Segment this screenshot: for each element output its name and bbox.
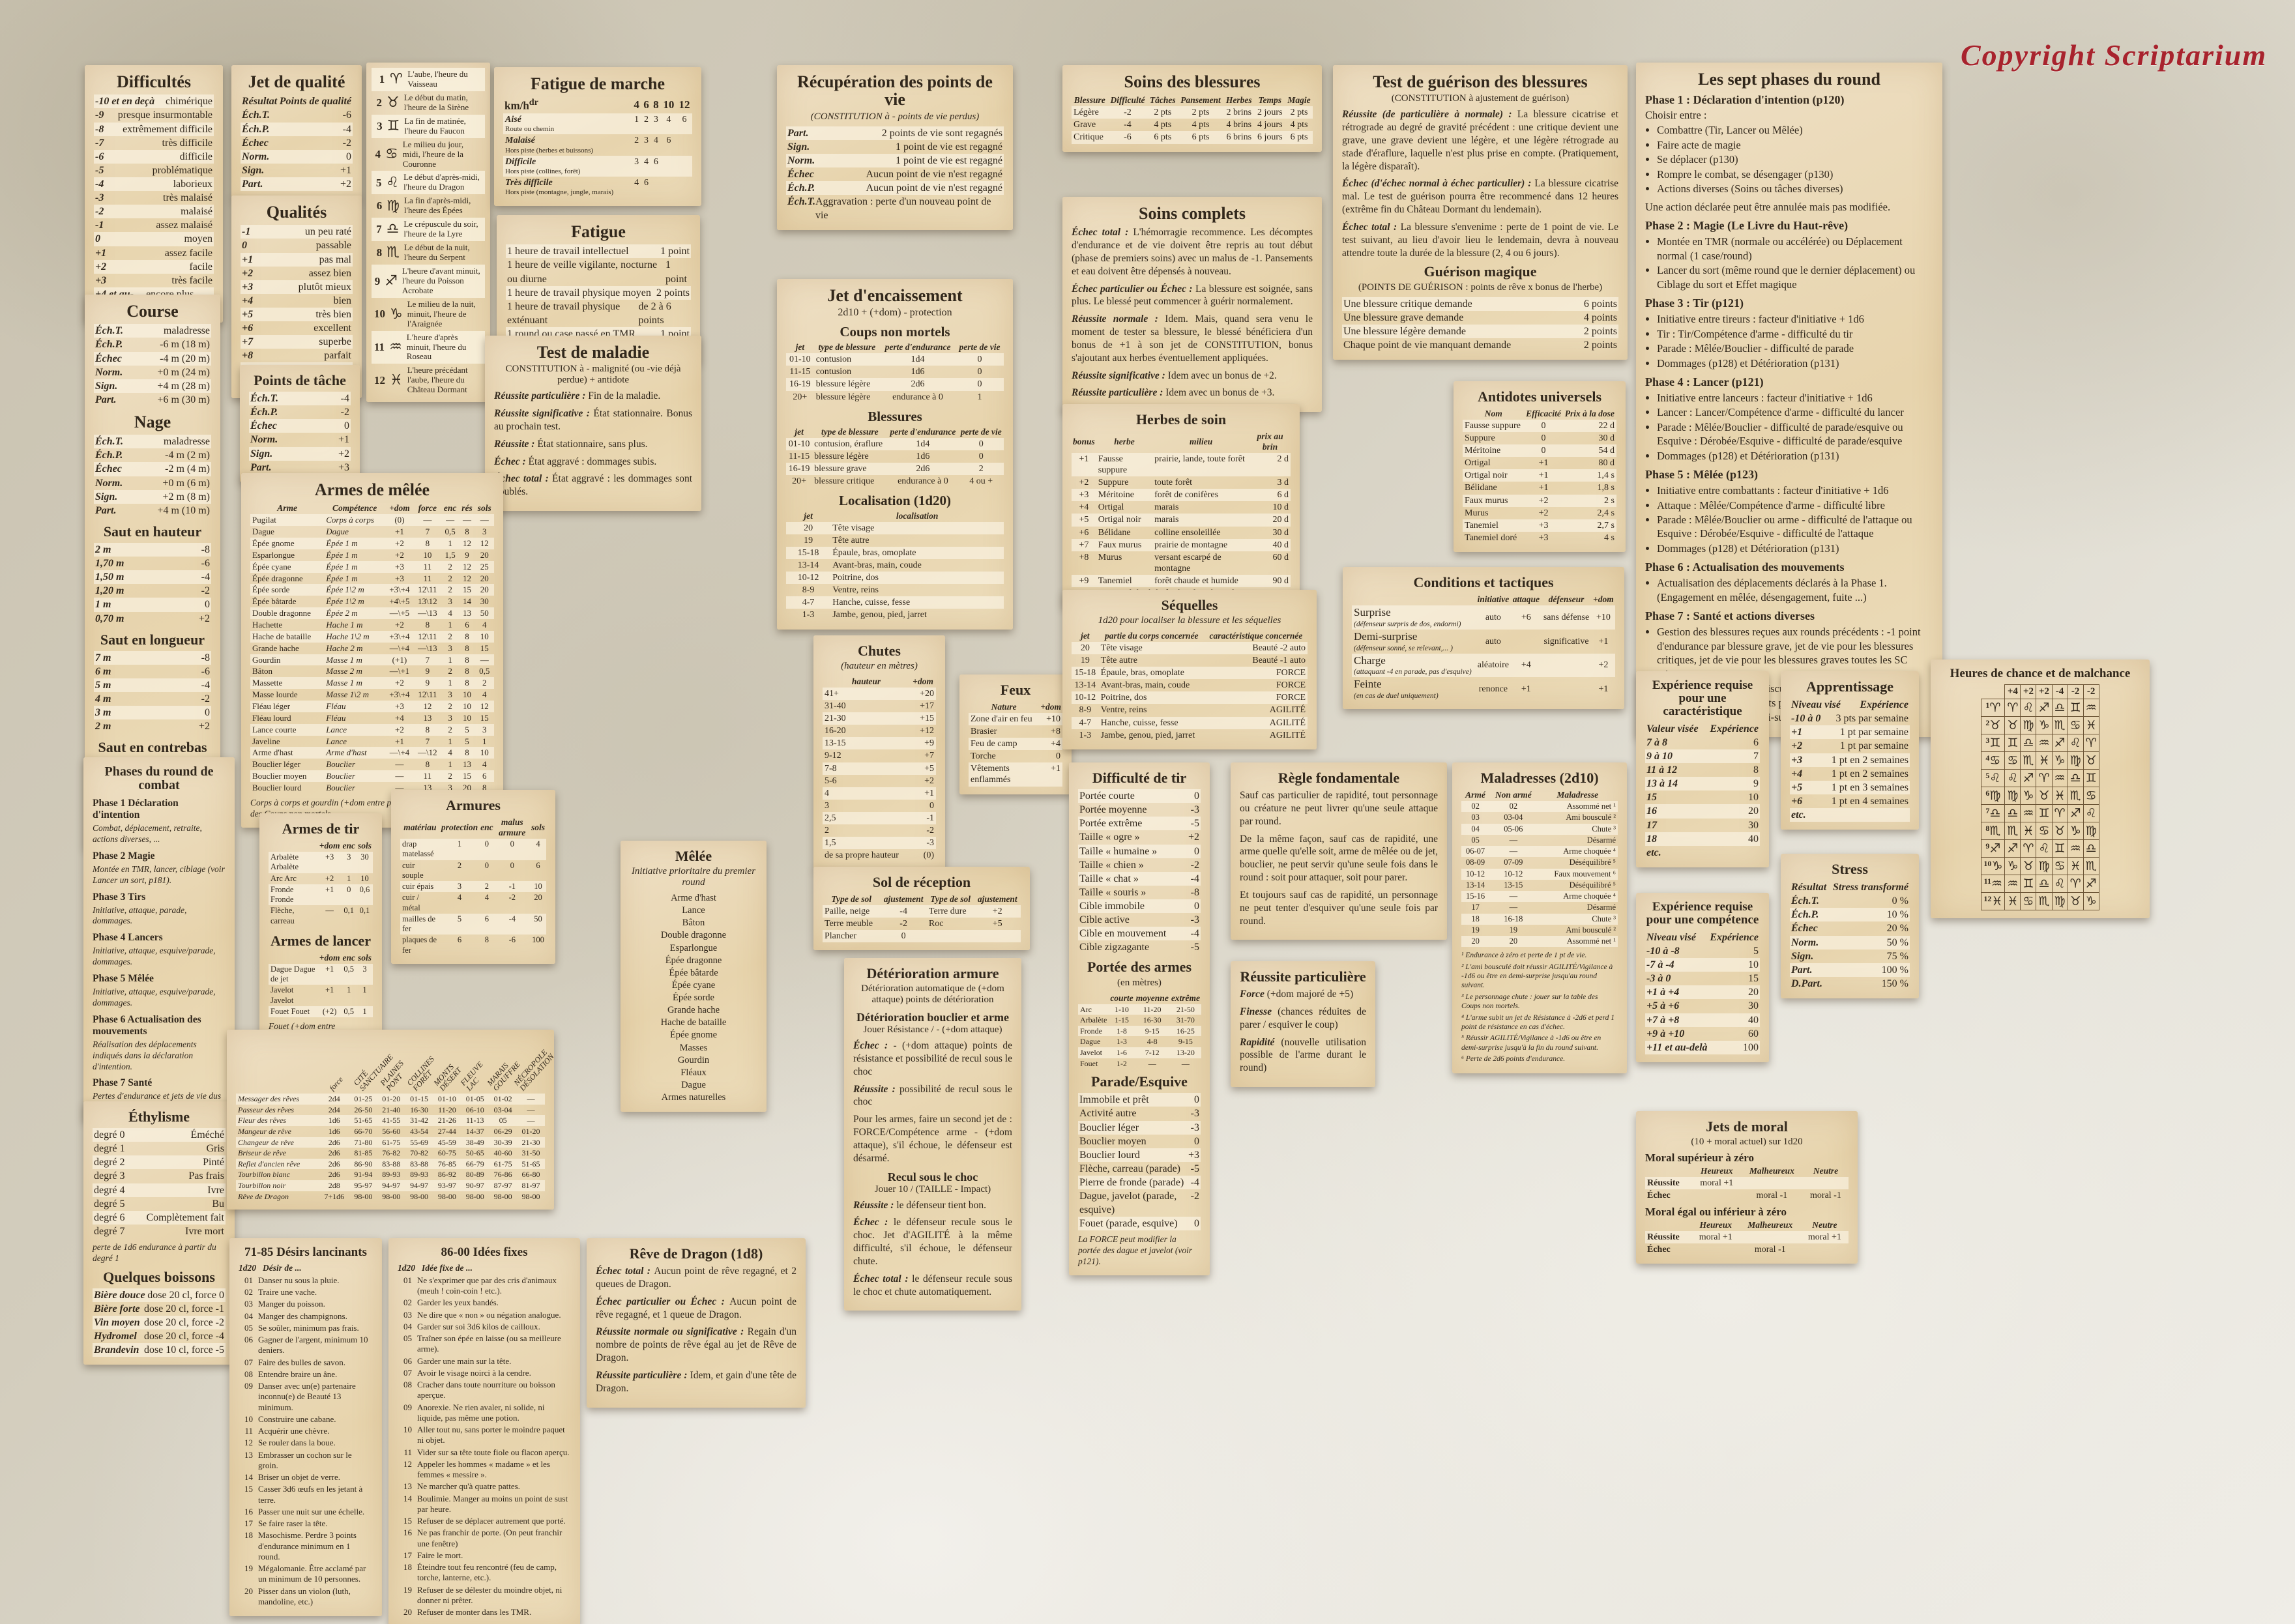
- list-item: 02Garder les yeux bandés.: [398, 1298, 571, 1308]
- cell: Suppure: [1463, 432, 1524, 444]
- cell-label: Taille « humaine »: [1079, 845, 1157, 858]
- table-row: -5problématique: [94, 164, 214, 177]
- table-row: Bière doucedose 20 cl, force 0: [93, 1288, 226, 1302]
- hour-sigil-icon: ♉: [2068, 892, 2083, 910]
- list-item: 09Anorexie. Ne rien avaler, ni solide, n…: [398, 1402, 571, 1424]
- cell: 02: [1489, 801, 1537, 812]
- table-row: Brasier+8: [969, 725, 1062, 738]
- exp-comp-table: Niveau viséExpérience-10 à -85-7 à -410-…: [1645, 931, 1760, 1054]
- table-header: RésultatPoints de qualité: [241, 94, 353, 108]
- paragraph: Réussite significative : État stationnai…: [494, 407, 692, 433]
- hour-number: 8: [374, 246, 382, 259]
- table-row: BâtonMasse 2 m—\+19280,5: [250, 665, 494, 677]
- hour-sigil-icon: ♊: [2068, 699, 2083, 716]
- cell: Épée gnome: [250, 538, 324, 549]
- hour-sigil-icon: ♐: [2021, 769, 2036, 787]
- cell: +4\+5: [385, 596, 414, 607]
- cell: 10-12: [1072, 691, 1099, 704]
- paragraph: Échec total : La blessure s'envenime : p…: [1342, 221, 1618, 259]
- table-row: MassetteMasse 1 m+29182: [250, 677, 494, 689]
- table-row: -10 et en deçàchimérique: [94, 94, 214, 108]
- cell: 3: [441, 596, 460, 607]
- cell: endurance à 0: [880, 391, 956, 403]
- cell-label: Bière forte: [94, 1302, 140, 1316]
- cell: Épée 2 m: [324, 607, 385, 619]
- cell-label: 7 à 8: [1646, 736, 1667, 749]
- cell: plaques de fer: [400, 935, 440, 956]
- paragraph: Échec : État aggravé : dommages subis.: [494, 456, 692, 469]
- cell: Fléau léger: [250, 701, 324, 712]
- phase-desc: Combat, déplacement, retraite, actions d…: [93, 823, 226, 845]
- cell: 0: [956, 366, 1004, 378]
- cell: 11: [414, 573, 441, 585]
- cell: +1: [385, 736, 414, 747]
- list-item: 10Aller tout nu, sans porter le moindre …: [398, 1425, 571, 1446]
- hour-sigil-icon: ♐: [2036, 699, 2052, 716]
- table-row: 0passable: [241, 239, 353, 252]
- cell: Lance courte: [250, 724, 324, 736]
- cell: Ortigal: [1096, 501, 1152, 514]
- cell: 13-14: [786, 559, 830, 572]
- grid-row: 8♏♏♓♋♉♑♍: [1981, 822, 2099, 839]
- cell-value: 1 point de vie est regagné: [896, 154, 1002, 167]
- list-item: 19Refuser de se délester du moindre obje…: [398, 1585, 571, 1606]
- table-row: 7 m-8: [94, 651, 211, 665]
- list-item: 07Faire des bulles de savon.: [239, 1357, 373, 1368]
- hour-sigil-icon: ♉: [1989, 718, 2000, 732]
- cell-value: 8: [1753, 763, 1759, 777]
- table-row: Fléau légerFléau+31221012: [250, 701, 494, 712]
- paragraph: Réussite particulière : Idem avec un bon…: [1072, 386, 1313, 399]
- table-row: cuir souple2006: [400, 860, 546, 882]
- table-header: HeureuxMalheureuxNeutre: [1645, 1219, 1849, 1231]
- paragraph: Échec particulier ou Échec : La blessure…: [1072, 283, 1313, 309]
- cell: 10: [459, 712, 475, 724]
- table-row: Fausse suppure022 d: [1463, 420, 1616, 432]
- hour-number: 3: [374, 120, 383, 133]
- hour-sigil-icon: ♐: [2052, 734, 2068, 751]
- table-row: 0,70 m+2: [94, 612, 211, 626]
- card-title: Règle fondamentale: [1240, 770, 1438, 785]
- cell-label: Échec: [787, 167, 814, 181]
- cell: +1: [318, 985, 342, 1006]
- hour-number: 4: [374, 148, 381, 161]
- table-row: 20+blessure légèreendurance à 01: [786, 391, 1004, 403]
- cell: 3: [441, 689, 460, 701]
- table-row: 7-8+5: [823, 762, 936, 775]
- hour-label: La fin d'après-midi, l'heure des Épées: [404, 196, 482, 216]
- ethylisme-table: degré 0Éméchédegré 1Grisdegré 2Pintédegr…: [93, 1128, 226, 1238]
- phase-desc: Initiative, attaque, esquive/parade, dom…: [93, 987, 226, 1009]
- cell-label: Portée extrême: [1079, 817, 1142, 830]
- cell-label: 17: [1646, 819, 1657, 832]
- hour-label: Le début du matin, l'heure de la Sirène: [404, 93, 482, 113]
- table-row: 4+1: [823, 787, 936, 800]
- cell-label: Part.: [242, 177, 263, 191]
- card-desirs-lancinants: 71-85 Désirs lancinants 1d20Désir de ...…: [229, 1238, 382, 1616]
- grid-row: 11♒♒♊♎♌♈♐: [1981, 875, 2099, 892]
- cell-value: difficile: [180, 150, 212, 164]
- table-row: Tourbillon noir2d895-9794-9794-9793-9790…: [236, 1180, 545, 1191]
- paragraph: Finesse (chances réduites de parer / esq…: [1240, 1006, 1366, 1032]
- table-row: Bélidane+11,8 s: [1463, 482, 1616, 494]
- table-row: Paille, neige-4Terre dure+2: [823, 905, 1021, 918]
- hour-sigil-icon: ♒: [2005, 875, 2021, 892]
- cell: 0: [1524, 444, 1562, 457]
- cell-value: problématique: [153, 164, 212, 177]
- cell: 2 d: [1250, 453, 1291, 476]
- cell-label: Taille « ogre »: [1079, 830, 1140, 844]
- cell-value: +2: [340, 177, 351, 191]
- cell: 8: [414, 538, 441, 549]
- cell: FORCE: [1205, 691, 1308, 704]
- table-row: Légère-22 pts2 pts2 brins2 jours2 pts: [1072, 106, 1313, 119]
- cell: Zone d'air en feu: [969, 713, 1039, 725]
- cell-label: 1 heure de travail physique exténuant: [507, 300, 638, 327]
- card-encaissement: Jet d'encaissement 2d10 + (+dom) - prote…: [777, 279, 1013, 630]
- table-row: Éch.P.-4 m (2 m): [94, 448, 211, 462]
- table-row: Chaque point de vie manquant demande2 po…: [1342, 338, 1618, 352]
- phase-item: Faire acte de magie: [1657, 138, 1933, 152]
- card-title: Jet d'encaissement: [786, 287, 1004, 304]
- list-item: Épée cyane: [630, 979, 757, 992]
- cell: Épée cyane: [250, 561, 324, 573]
- cell: 20 d: [1250, 514, 1291, 526]
- cell: +3: [385, 561, 414, 573]
- table-row: 1730: [1645, 819, 1760, 832]
- cell: colline ensoleillée: [1152, 527, 1250, 539]
- cell: Hachette: [250, 619, 324, 631]
- cell: Javeline: [250, 736, 324, 747]
- cell: 6: [440, 935, 479, 956]
- cell: 1-3: [1072, 729, 1099, 742]
- cell-label: Part.: [95, 504, 116, 517]
- cell: 3: [441, 643, 460, 654]
- hour-sigil-icon: ♉: [2005, 716, 2021, 734]
- cell-label: Éch.T.: [787, 195, 815, 222]
- cell: 3 d: [1250, 476, 1291, 489]
- list-item: 04Manger des champignons.: [239, 1311, 373, 1322]
- cell-value: 2 points: [1584, 338, 1617, 352]
- cell: 13\12: [414, 596, 441, 607]
- cell: Légère: [1072, 106, 1108, 119]
- cell: 19: [1072, 654, 1099, 667]
- cell-label: +4: [242, 294, 253, 308]
- cell-label: 2 m: [95, 719, 111, 733]
- footnote: ⁴ L'arme subit un jet de Résistance à -2…: [1461, 1013, 1618, 1032]
- table-row: Éch.T.Aggravation : perte d'un nouveau p…: [786, 195, 1004, 222]
- localisation-title: Localisation (1d20): [786, 493, 1004, 509]
- list-item: 19Mégalomanie. Être acclamé par un minim…: [239, 1563, 373, 1585]
- hour-sigil-icon: ♍: [2021, 716, 2036, 734]
- table-row: 16-19blessure grave2d62: [786, 463, 1004, 475]
- maladresses-table: ArméNon arméMaladresse0202Assommé net ¹0…: [1461, 789, 1618, 947]
- table-row: Immobile et prêt0: [1078, 1093, 1201, 1107]
- list-item: 14Boulimie. Manger au moins un point de …: [398, 1494, 571, 1515]
- grid-row: 6♍♍♑♉♓♏♋: [1981, 787, 2099, 804]
- cell: 22 d: [1563, 420, 1616, 432]
- cell-label: degré 0: [94, 1128, 125, 1142]
- saut-hauteur-title: Saut en hauteur: [94, 524, 211, 539]
- cell: —\+4: [385, 643, 414, 654]
- table-row: Bière fortedose 20 cl, force -1: [93, 1302, 226, 1316]
- table-row: Cible immobile0: [1078, 899, 1201, 913]
- table-row: Arbalète Arbalète+3330: [269, 852, 373, 873]
- hour-label: L'heure précédant l'aube, l'heure du Châ…: [407, 366, 482, 395]
- cell-label: Échec: [1791, 921, 1818, 935]
- cell-value: 2 points: [656, 286, 690, 300]
- cell: Épaule, bras, omoplate: [830, 547, 1004, 559]
- table-row: +9 à +1060: [1645, 1027, 1760, 1041]
- table-row: 3 m0: [94, 706, 211, 719]
- hour-sigil-icon: ♉: [387, 94, 400, 111]
- cell: +3: [1524, 532, 1562, 544]
- cell: 17: [1461, 902, 1489, 913]
- table-row: 11 à 128: [1645, 763, 1760, 777]
- cell: Faux mouvement ⁶: [1538, 869, 1618, 880]
- table-row: Activité autre-3: [1078, 1107, 1201, 1120]
- cell-value: -4: [1191, 872, 1199, 886]
- paragraph: Réussite : possibilité de recul sous le …: [853, 1083, 1012, 1109]
- table-row: 08-0907-09Déséquilibré ⁵: [1461, 857, 1618, 868]
- table-row: Mangeur de rêve1d666-7056-6043-5427-4414…: [236, 1126, 545, 1137]
- cell: 10-12: [786, 572, 830, 584]
- cell: +4: [1072, 501, 1096, 514]
- cell: 8: [459, 643, 475, 654]
- card-herbes-de-soin: Herbes de soin bonusherbemilieuprix au b…: [1062, 404, 1300, 607]
- cell: —: [385, 759, 414, 770]
- cell: Hache 1\2 m: [324, 631, 385, 643]
- cell: —: [1489, 835, 1537, 846]
- jets-moral-tables: Moral supérieur à zéroHeureuxMalheureuxN…: [1645, 1152, 1849, 1256]
- cell: Fronde: [1078, 1026, 1109, 1037]
- card-difficultes: Difficultés -10 et en deçàchimérique-9pr…: [85, 65, 223, 323]
- cell-value: +2: [199, 612, 210, 626]
- cell: 4: [475, 689, 494, 701]
- table-row: Plancher0: [823, 930, 1021, 942]
- table-row: Tourbillon blanc2d691-9489-9389-9386-928…: [236, 1169, 545, 1180]
- card-melee-initiative: Mêlée Initiative prioritaire du premier …: [621, 841, 767, 1112]
- cell: Faux murus: [1096, 539, 1152, 551]
- table-row: PugilatCorps à corps(0)————: [250, 514, 494, 526]
- cell: +1: [385, 526, 414, 538]
- phase-item: Attaque : Mêlée/Compétence d'arme - diff…: [1657, 499, 1933, 512]
- card-test-guerison: Test de guérison des blessures (CONSTITU…: [1333, 65, 1628, 360]
- hour-sigil-icon: ♐: [2005, 839, 2021, 857]
- table-row: Pierre de fronde (parade)-4: [1078, 1176, 1201, 1189]
- cell: 4: [530, 839, 546, 860]
- cell: 8: [459, 677, 475, 689]
- hour-sigil-icon: ♓: [1991, 894, 2002, 908]
- cell: Désarmé: [1538, 835, 1618, 846]
- cell-label: +1: [242, 253, 253, 267]
- cell: +2: [318, 873, 342, 884]
- table-row: 19Tête autreBeauté -1 auto: [1072, 654, 1308, 667]
- cell: 5: [440, 914, 479, 935]
- cell-value: +3: [1188, 1148, 1199, 1162]
- cell: +8: [1039, 725, 1062, 738]
- table-row: D.Part.150 %: [1790, 977, 1910, 991]
- hour-sigil-icon: ♒: [2021, 804, 2036, 822]
- cell-value: 1 pt en 2 semaines: [1832, 767, 1908, 781]
- cell-label: Portée courte: [1079, 789, 1135, 803]
- cell: 10-12: [1461, 869, 1489, 880]
- cell: Masse 1 m: [324, 654, 385, 666]
- table-row: 8-9Ventre, reins: [786, 584, 1004, 596]
- table-row: +21 pt par semaine: [1790, 739, 1910, 753]
- list-item: 05Traîner son épée en laisse (ou sa meil…: [398, 1333, 571, 1355]
- cell-label: degré 5: [94, 1197, 125, 1211]
- cell: +1: [1524, 457, 1562, 469]
- cell-value: 75 %: [1887, 950, 1908, 963]
- cell: Ventre, reins: [1099, 704, 1205, 716]
- cell-value: 1 pt en 3 semaines: [1832, 781, 1908, 794]
- table-row: Hache de batailleHache 1\2 m+3\+412\1128…: [250, 631, 494, 643]
- sequelles-table: jetpartie du corps concernéecaractéristi…: [1072, 630, 1308, 742]
- cell: 8: [459, 665, 475, 677]
- cell: 13-20: [1170, 1047, 1201, 1058]
- cell: Gourdin: [250, 654, 324, 666]
- cell-value: Ivre mort: [185, 1225, 224, 1238]
- hour-row: 12♓L'heure précédant l'aube, l'heure du …: [372, 364, 485, 397]
- cell: 1d4: [887, 438, 958, 450]
- table-row: +7 à +840: [1645, 1013, 1760, 1027]
- card-antidotes: Antidotes universels NomEfficacitéPrix à…: [1454, 381, 1626, 552]
- cell-label: +11 et au-delà: [1646, 1041, 1708, 1054]
- cell-value: -3: [1191, 1121, 1199, 1135]
- boissons-table: Bière doucedose 20 cl, force 0Bière fort…: [93, 1288, 226, 1357]
- table-row: -9presque insurmontable: [94, 108, 214, 122]
- cell: 8: [414, 619, 441, 631]
- table-row: JavelineLance+17151: [250, 736, 494, 747]
- phase-desc: Initiative, attaque, esquive/parade, dom…: [93, 946, 226, 968]
- list-item: Grande hache: [630, 1004, 757, 1017]
- reve-dragon-paras: Échec total : Aucun point de rêve regagn…: [596, 1265, 797, 1395]
- cell: 12\11: [414, 584, 441, 596]
- table-row: 11-15contusion1d60: [786, 366, 1004, 378]
- table-row: 7 à 86: [1645, 736, 1760, 749]
- cell: Épée 1 m: [324, 573, 385, 585]
- hour-sigil-icon: ♉: [2052, 822, 2068, 839]
- cell: 0,5: [475, 665, 494, 677]
- cell-label: Norm.: [1791, 936, 1819, 950]
- cell: prairie, lande, toute forêt: [1152, 453, 1250, 476]
- hour-sigil-icon: ♑: [2068, 822, 2083, 839]
- table-row: 1,50 m-4: [94, 570, 211, 584]
- cell: Hanche, cuisse, fesse: [1099, 717, 1205, 729]
- cell: 1d6: [880, 366, 956, 378]
- hour-label: Le crépuscule du soir, l'heure de la Lyr…: [403, 220, 482, 239]
- cell: Beauté -1 auto: [1205, 654, 1308, 667]
- cell-value: 4 points: [1584, 311, 1617, 325]
- blessures-table: jettype de blessureperte d'endurancepert…: [786, 426, 1004, 487]
- cell-label: Sign.: [95, 490, 117, 504]
- table-row: Critique-66 pts6 pts6 brins6 jours6 pts: [1072, 131, 1313, 143]
- column-header: FLEUVE LAC: [459, 1060, 490, 1092]
- cell-value: 0: [1194, 789, 1199, 803]
- cell: +2: [385, 538, 414, 549]
- table-row: +1pas mal: [241, 253, 353, 267]
- cell: [927, 930, 974, 942]
- cell-value: 3 pts par semaine: [1835, 712, 1908, 725]
- table-row: 01-10contusion, éraflure1d40: [786, 438, 1004, 450]
- card-sept-phases: Les sept phases du round Phase 1 : Décla…: [1636, 63, 1942, 737]
- cell: 1: [441, 736, 460, 747]
- list-item: Fléaux: [630, 1067, 757, 1079]
- cell: Paille, neige: [823, 905, 880, 918]
- list-item: 13Embrasser un cochon sur le groin.: [239, 1450, 373, 1472]
- cell: 8-9: [786, 584, 830, 596]
- cell: Chute ³: [1538, 914, 1618, 925]
- table-row: Éch.T.0 %: [1790, 894, 1910, 908]
- table-row: Part.+6 m (30 m): [94, 393, 211, 407]
- table-row: Éch.T.maladresse: [94, 435, 211, 448]
- table-row: cuir épais32-110: [400, 881, 546, 892]
- table-row: Part.+3: [249, 461, 351, 474]
- cell: 10: [475, 747, 494, 759]
- cell: forêt de conifères: [1152, 489, 1250, 501]
- hour-sigil-icon: ♏: [1989, 824, 2000, 838]
- cell: +2: [1524, 495, 1562, 507]
- antidotes-table: NomEfficacitéPrix à la doseFausse suppur…: [1463, 408, 1616, 544]
- table-row: Norm.+0 m (24 m): [94, 366, 211, 379]
- table-row: +1assez facile: [94, 246, 214, 260]
- hour-sigil-icon: ♋: [2021, 892, 2036, 910]
- cell: 8-9: [1072, 704, 1099, 716]
- table-row: 1 heure de travail physique moyen2 point…: [506, 286, 691, 300]
- cell: marais: [1152, 501, 1250, 514]
- hour-label: Le début de la nuit, l'heure du Serpent: [404, 243, 482, 263]
- coups-non-mortels-title: Coups non mortels: [786, 324, 1004, 340]
- cell: 8: [479, 935, 495, 956]
- moral-section-title: Moral égal ou inférieur à zéro: [1645, 1206, 1849, 1219]
- phase-heading: Phase 7 : Santé et actions diverses: [1645, 609, 1933, 623]
- cell-value: moyen: [184, 232, 212, 246]
- hour-sigil-icon: ♑: [2083, 892, 2099, 910]
- cell: 15: [459, 770, 475, 782]
- table-row: Norm.50 %: [1790, 936, 1910, 950]
- list-item: 20Pisser dans un violon (luth, mandoline…: [239, 1586, 373, 1608]
- table-header: hauteur+dom: [823, 676, 936, 688]
- ethylisme-note: perte de 1d6 endurance à partir du degré…: [93, 1242, 226, 1264]
- table-row: mailles de fer56-450: [400, 914, 546, 935]
- cell: 18: [1461, 914, 1489, 925]
- cell-value: -5: [1191, 940, 1199, 954]
- hour-sigil-icon: ♊: [2036, 804, 2052, 822]
- card-title: Sol de réception: [823, 875, 1021, 890]
- hour-row: 9♐L'heure d'avant minuit, l'heure du Poi…: [372, 265, 485, 298]
- table-row: +6excellent: [241, 321, 353, 335]
- cell: +3\+4: [385, 689, 414, 701]
- hour-sigil-icon: ♎: [2005, 804, 2021, 822]
- table-row: Arc1-1011-2021-50: [1078, 1004, 1201, 1015]
- table-row: Une blessure légère demande2 points: [1342, 325, 1618, 338]
- cell: —\+4: [385, 747, 414, 759]
- hour-sigil-icon: ♉: [2036, 787, 2052, 804]
- cell: cuir souple: [400, 860, 440, 882]
- cell: 14: [459, 596, 475, 607]
- cell: 2: [958, 463, 1004, 475]
- cell: —: [1489, 902, 1537, 913]
- cell-value: 6 points: [1584, 297, 1617, 311]
- cell: 2d6: [887, 463, 958, 475]
- hour-sigil-icon: ♎: [2083, 839, 2099, 857]
- cell: 0,5: [341, 964, 357, 985]
- cell: Murus: [1096, 551, 1152, 575]
- hour-sigil-icon: ♐: [2068, 804, 2083, 822]
- table-row: +1 à +420: [1645, 985, 1760, 999]
- cell: +1: [1039, 762, 1062, 786]
